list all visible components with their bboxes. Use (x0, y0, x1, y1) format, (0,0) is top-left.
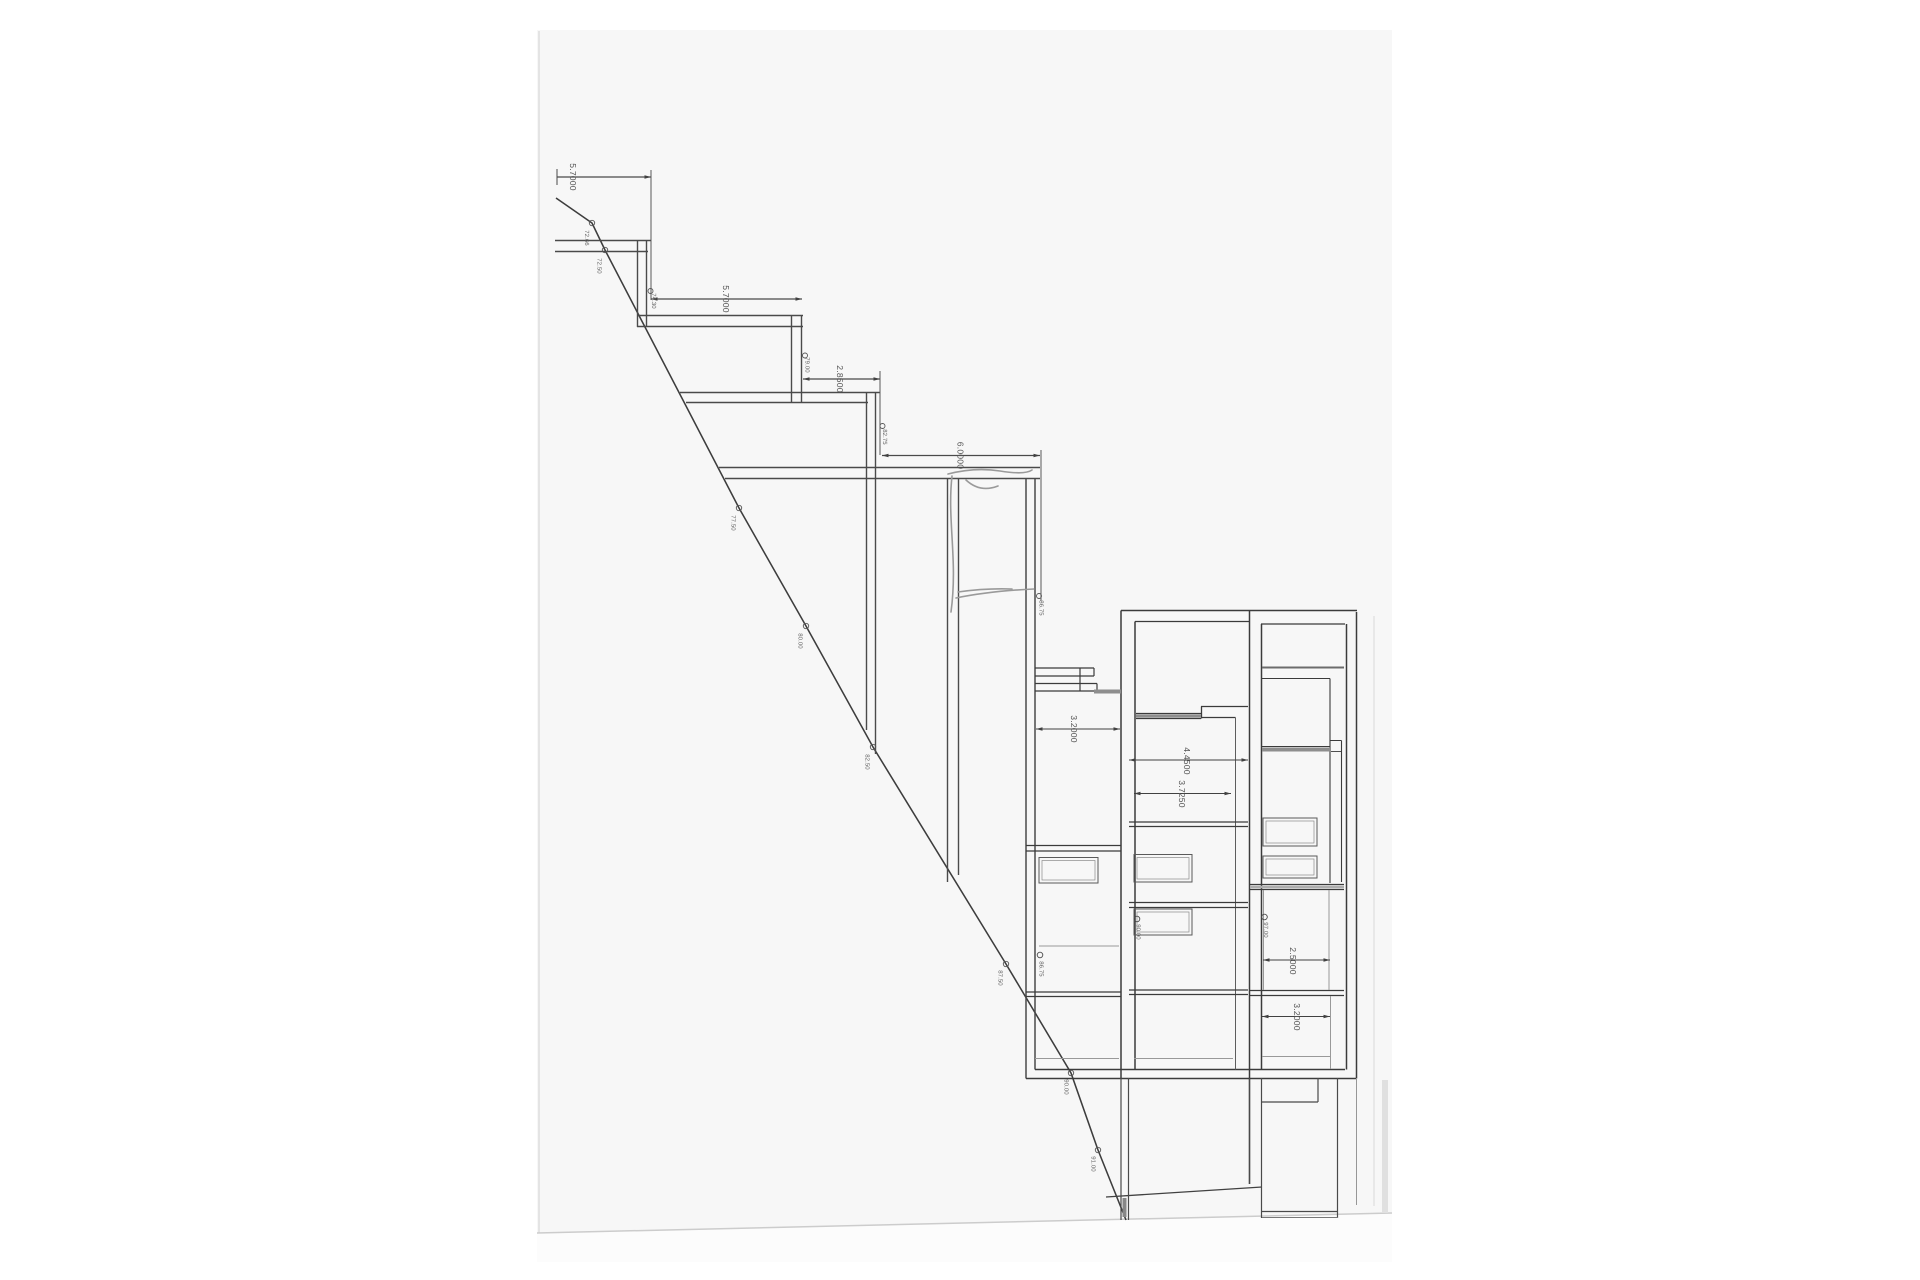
svg-text:3.2000: 3.2000 (1069, 715, 1079, 743)
svg-text:91.00: 91.00 (1090, 1156, 1097, 1172)
svg-text:4.4500: 4.4500 (1182, 747, 1192, 775)
svg-text:2.8500: 2.8500 (835, 365, 845, 393)
svg-text:82.50: 82.50 (864, 754, 871, 770)
svg-text:86.75: 86.75 (1038, 600, 1045, 616)
svg-text:82.75: 82.75 (881, 429, 888, 445)
svg-text:90.00: 90.00 (1063, 1079, 1070, 1095)
svg-text:72.66: 72.66 (583, 230, 590, 246)
svg-text:77.50: 77.50 (730, 515, 737, 531)
svg-text:90.00: 90.00 (1135, 924, 1142, 940)
svg-text:3.2000: 3.2000 (1292, 1003, 1302, 1031)
svg-text:3.7250: 3.7250 (1177, 780, 1187, 808)
svg-text:79.00: 79.00 (804, 357, 811, 373)
svg-text:5.7000: 5.7000 (721, 285, 731, 313)
svg-text:6.0000: 6.0000 (956, 442, 966, 470)
svg-text:80.00: 80.00 (797, 633, 804, 649)
svg-text:2.5000: 2.5000 (1288, 947, 1298, 975)
svg-text:87.50: 87.50 (997, 970, 1004, 986)
svg-text:5.7000: 5.7000 (568, 163, 578, 191)
svg-text:72.50: 72.50 (596, 258, 603, 274)
svg-text:86.75: 86.75 (1038, 961, 1045, 977)
svg-text:74.30: 74.30 (650, 293, 657, 309)
svg-text:97.00: 97.00 (1262, 922, 1269, 938)
